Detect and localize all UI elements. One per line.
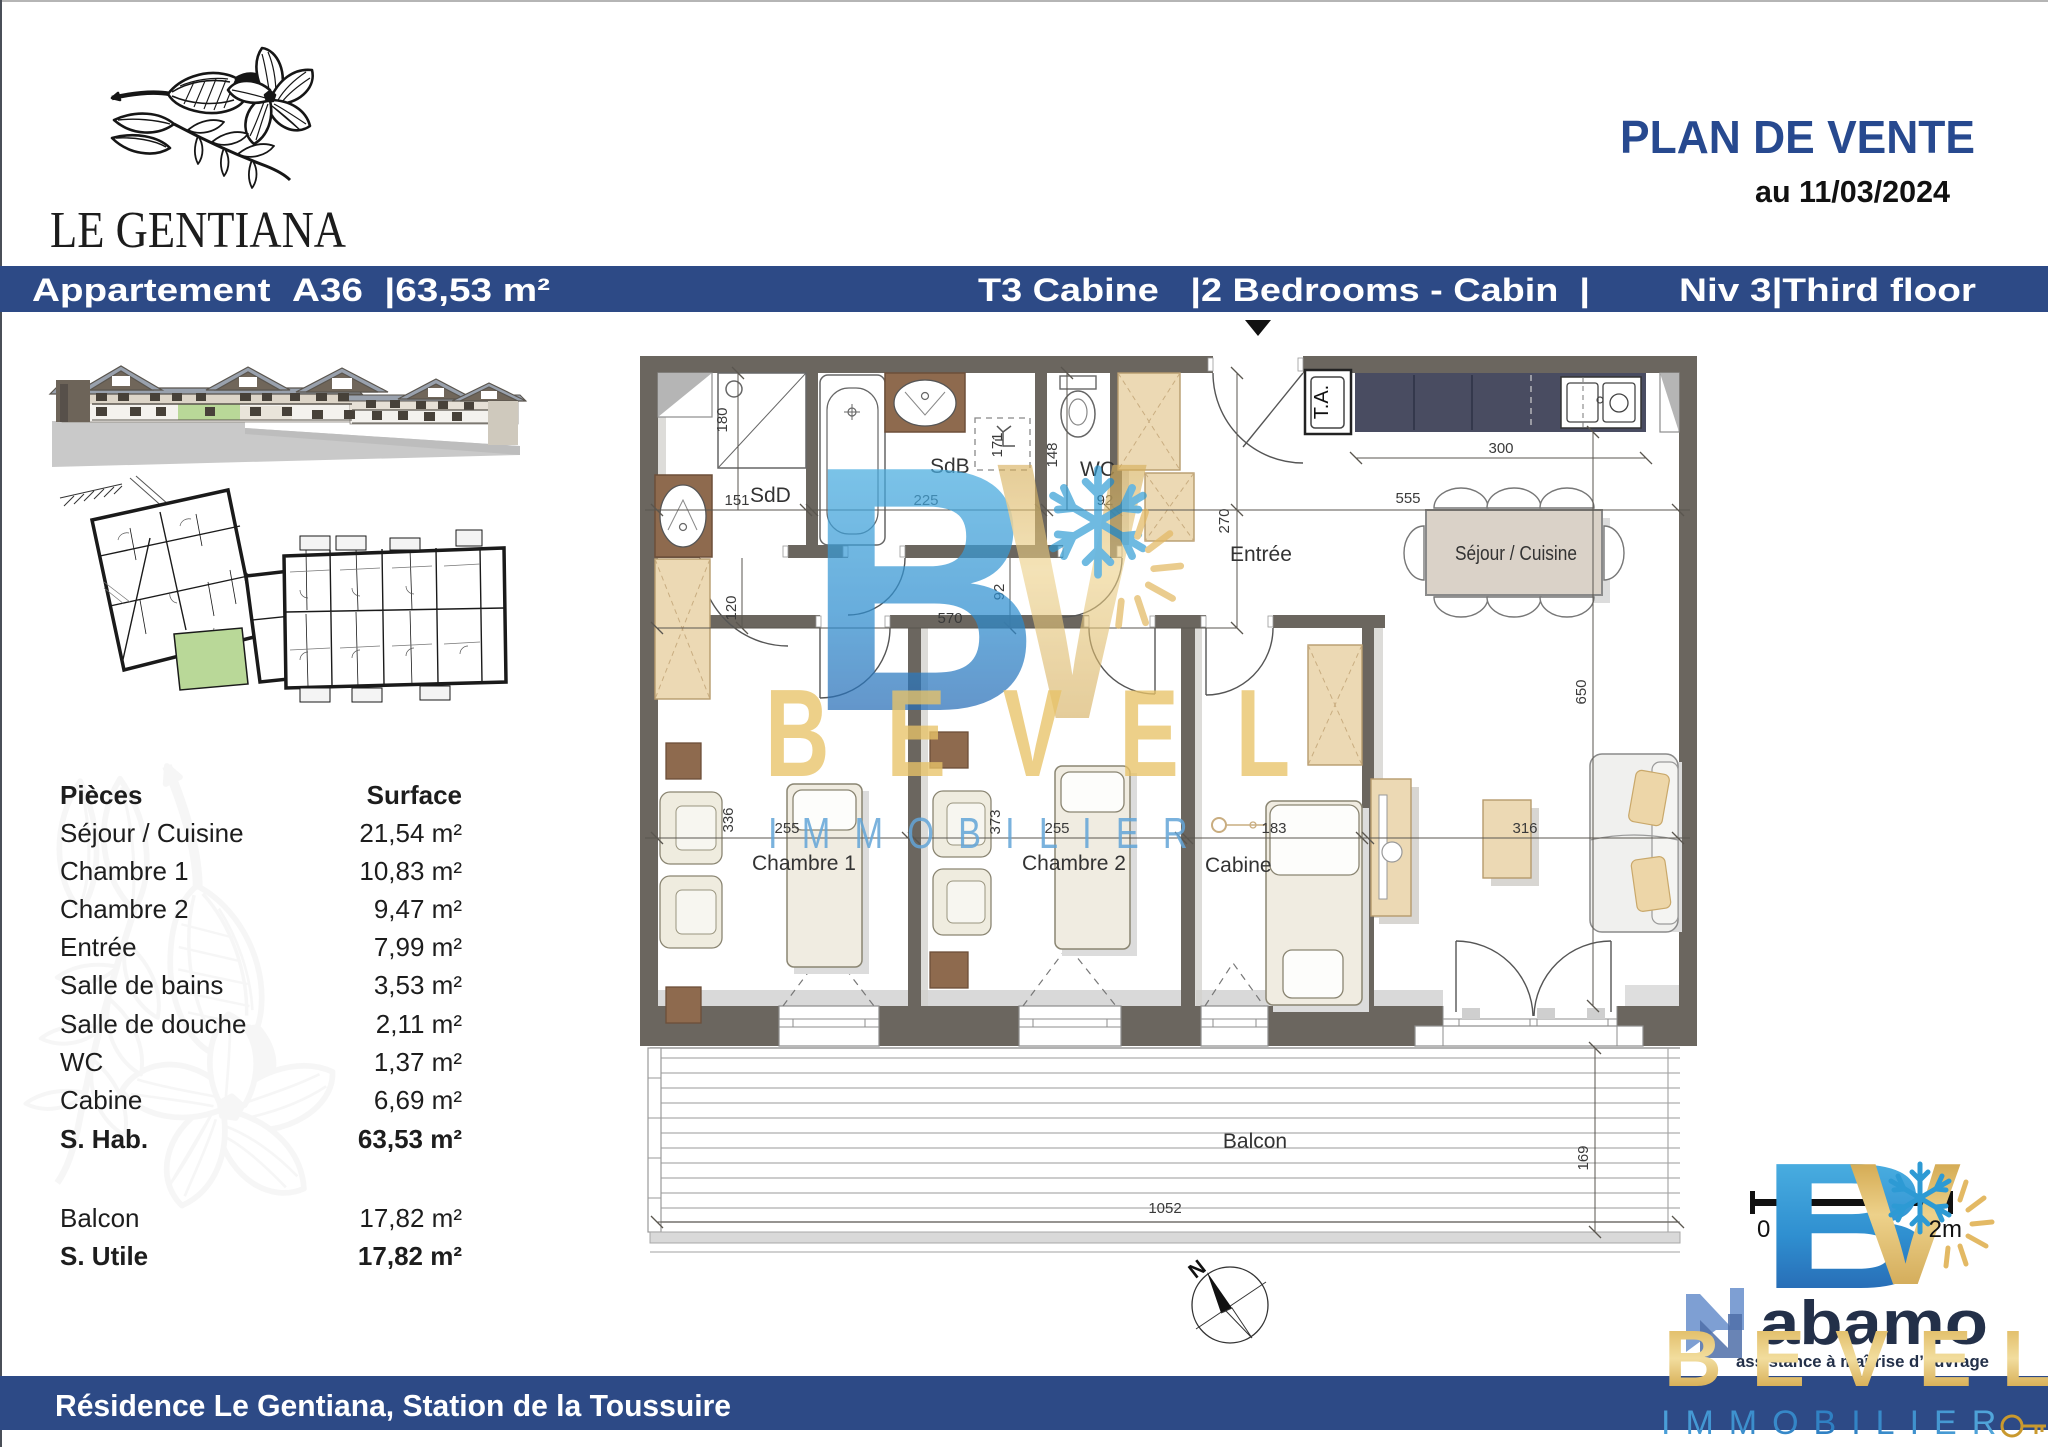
svg-text:Cabine: Cabine (60, 1085, 142, 1115)
svg-text:0: 0 (1757, 1216, 1770, 1243)
svg-text:IMMOBILIER: IMMOBILIER (768, 809, 1212, 858)
svg-text:Chambre 2: Chambre 2 (60, 894, 189, 924)
svg-text:Salle de douche: Salle de douche (60, 1009, 246, 1039)
svg-text:17,82 m²: 17,82 m² (359, 1203, 462, 1233)
svg-text:1,37 m²: 1,37 m² (374, 1047, 462, 1077)
svg-text:au 11/03/2024: au 11/03/2024 (1755, 174, 1951, 209)
svg-text:151: 151 (724, 492, 749, 509)
svg-text:63,53 m²: 63,53 m² (358, 1124, 462, 1154)
svg-text:555: 555 (1395, 490, 1420, 507)
svg-text:Salle de bains: Salle de bains (60, 970, 223, 1000)
svg-text:21,54 m²: 21,54 m² (359, 818, 462, 848)
svg-text:2m: 2m (1929, 1216, 1962, 1243)
svg-text:Balcon: Balcon (1223, 1130, 1287, 1153)
svg-text:316: 316 (1512, 820, 1537, 837)
svg-text:IMMOBILIER: IMMOBILIER (1661, 1404, 2011, 1442)
svg-text:3,53 m²: 3,53 m² (374, 970, 462, 1000)
svg-text:169: 169 (1575, 1145, 1592, 1170)
svg-text:336: 336 (720, 807, 737, 832)
svg-text:9,47 m²: 9,47 m² (374, 894, 462, 924)
svg-text:7,99 m²: 7,99 m² (374, 932, 462, 962)
svg-text:300: 300 (1488, 440, 1513, 457)
svg-text:180: 180 (714, 407, 731, 432)
svg-text:Niv 3|Third floor: Niv 3|Third floor (1679, 272, 1976, 308)
svg-text:Chambre 1: Chambre 1 (60, 856, 189, 886)
svg-text:120: 120 (723, 595, 740, 620)
svg-text:Séjour / Cuisine: Séjour / Cuisine (60, 818, 244, 848)
svg-text:BEVEL: BEVEL (765, 664, 1347, 803)
svg-text:6,69 m²: 6,69 m² (374, 1085, 462, 1115)
svg-text:SdD: SdD (750, 484, 791, 507)
svg-text:17,82 m²: 17,82 m² (358, 1241, 462, 1271)
svg-text:WC: WC (60, 1047, 103, 1077)
svg-text:Balcon: Balcon (60, 1203, 140, 1233)
svg-text:Résidence Le Gentiana, Station: Résidence Le Gentiana, Station de la Tou… (55, 1388, 731, 1423)
svg-text:Entrée: Entrée (1230, 543, 1292, 566)
svg-text:PLAN DE VENTE: PLAN DE VENTE (1620, 111, 1975, 163)
svg-text:183: 183 (1261, 820, 1286, 837)
svg-text:T.A.: T.A. (1311, 385, 1333, 419)
svg-text:T3 Cabine |2 Bedrooms - Cabi: T3 Cabine |2 Bedrooms - Cabin | (978, 272, 1590, 308)
svg-text:Appartement A36 |63,53 m²: Appartement A36 |63,53 m² (32, 272, 550, 308)
svg-text:1052: 1052 (1148, 1200, 1181, 1217)
svg-text:Cabine: Cabine (1205, 854, 1272, 877)
svg-text:S. Utile: S. Utile (60, 1241, 148, 1271)
svg-text:Surface: Surface (367, 780, 462, 810)
svg-text:LE GENTIANA: LE GENTIANA (50, 202, 346, 259)
svg-text:S. Hab.: S. Hab. (60, 1124, 148, 1154)
svg-text:Séjour / Cuisine: Séjour / Cuisine (1455, 543, 1577, 565)
svg-text:270: 270 (1216, 508, 1233, 533)
svg-text:Entrée: Entrée (60, 932, 137, 962)
svg-text:10,83 m²: 10,83 m² (359, 856, 462, 886)
svg-text:650: 650 (1573, 679, 1590, 704)
svg-text:2,11 m²: 2,11 m² (376, 1009, 463, 1039)
svg-text:BEVEL: BEVEL (1664, 1314, 2048, 1403)
svg-text:Pièces: Pièces (60, 780, 142, 810)
